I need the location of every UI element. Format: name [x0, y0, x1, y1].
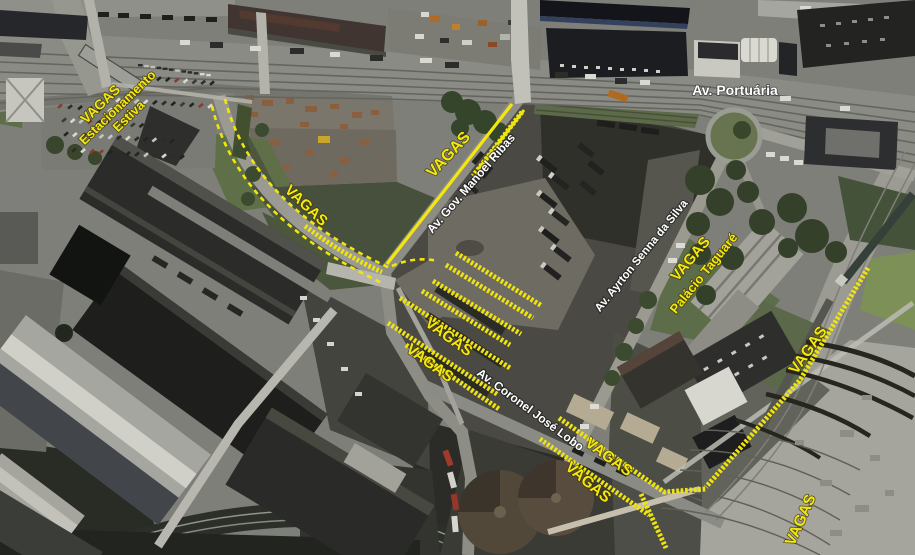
svg-text:Av. Portuária: Av. Portuária — [692, 82, 778, 98]
